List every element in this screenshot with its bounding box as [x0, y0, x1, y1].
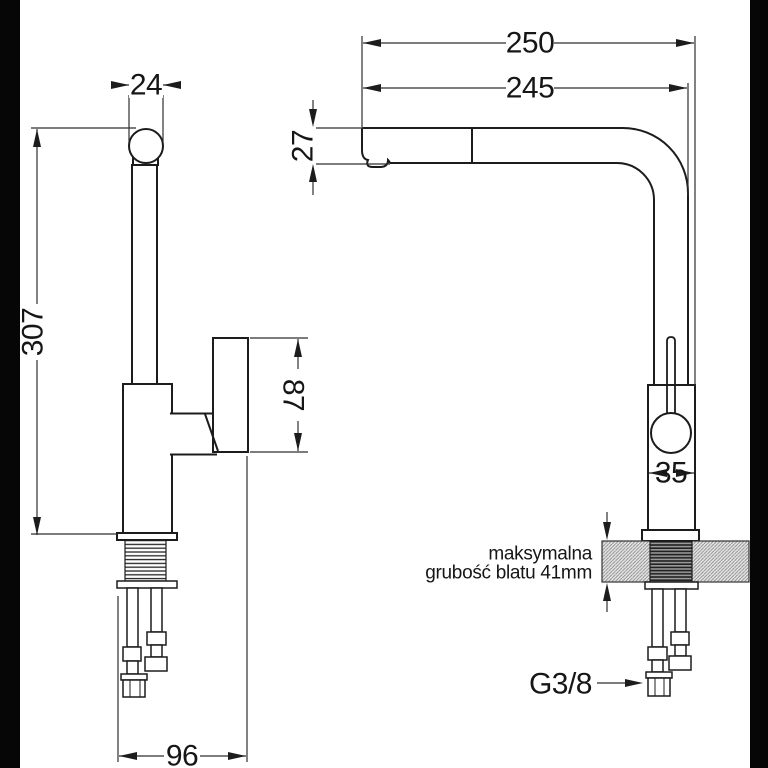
hose-tube: [127, 661, 138, 674]
dim-label-spout-diameter: 24: [130, 69, 162, 102]
hose-tube: [652, 660, 663, 672]
hose-nut: [648, 647, 667, 660]
hose-nut: [145, 657, 167, 671]
right-black-bar: [750, 0, 768, 768]
dim-label-handle-height: 87: [277, 379, 310, 411]
riser-pipe-side: [132, 165, 157, 384]
counter-note-line1: maksymalna: [488, 544, 592, 565]
hose-tube: [151, 645, 162, 657]
hose-tube: [151, 588, 162, 632]
hose-nut: [669, 656, 691, 670]
dim-label-spout-reach: 245: [506, 72, 555, 105]
dim-label-body-width: 35: [655, 457, 687, 490]
thread-label-g38: G3/8: [529, 668, 592, 701]
hose-end-nut: [648, 678, 670, 696]
hose-washer: [646, 672, 672, 678]
threaded-shank-side: [125, 540, 166, 581]
hose-washer: [121, 674, 147, 680]
hose-nut: [147, 632, 166, 645]
hose-end-nut: [123, 680, 145, 697]
base-flange-front: [642, 530, 699, 541]
technical-drawing-page: 24 307 87 96 250 245 27 35 maksymalna gr…: [0, 0, 768, 768]
hose-nut: [671, 632, 689, 645]
handle-arm-fill: [171, 415, 206, 454]
spout-end-circle: [129, 129, 163, 163]
faucet-body-side: [123, 384, 172, 533]
faucet-dimension-drawing: 24 307 87 96 250 245 27 35 maksymalna gr…: [0, 0, 768, 768]
base-flange-side: [117, 533, 177, 540]
dim-label-spout-outlet-height: 27: [287, 130, 320, 162]
hose-tube: [675, 589, 686, 632]
ball-joint-circle: [651, 413, 691, 453]
hose-tube: [127, 588, 138, 647]
locknut-front: [645, 582, 698, 589]
threaded-shank-front: [650, 541, 692, 582]
hose-tube: [652, 589, 663, 647]
mounting-plate-side: [117, 581, 177, 588]
counter-note-line2: grubość blatu 41mm: [425, 563, 592, 584]
hose-tube: [675, 645, 686, 656]
hose-nut: [123, 647, 141, 661]
dim-label-total-height: 307: [17, 308, 50, 357]
handle-lever-side: [213, 338, 248, 452]
dim-label-overall-reach: 250: [506, 27, 555, 60]
left-black-bar: [0, 0, 20, 768]
dim-label-base-depth: 96: [166, 740, 198, 768]
